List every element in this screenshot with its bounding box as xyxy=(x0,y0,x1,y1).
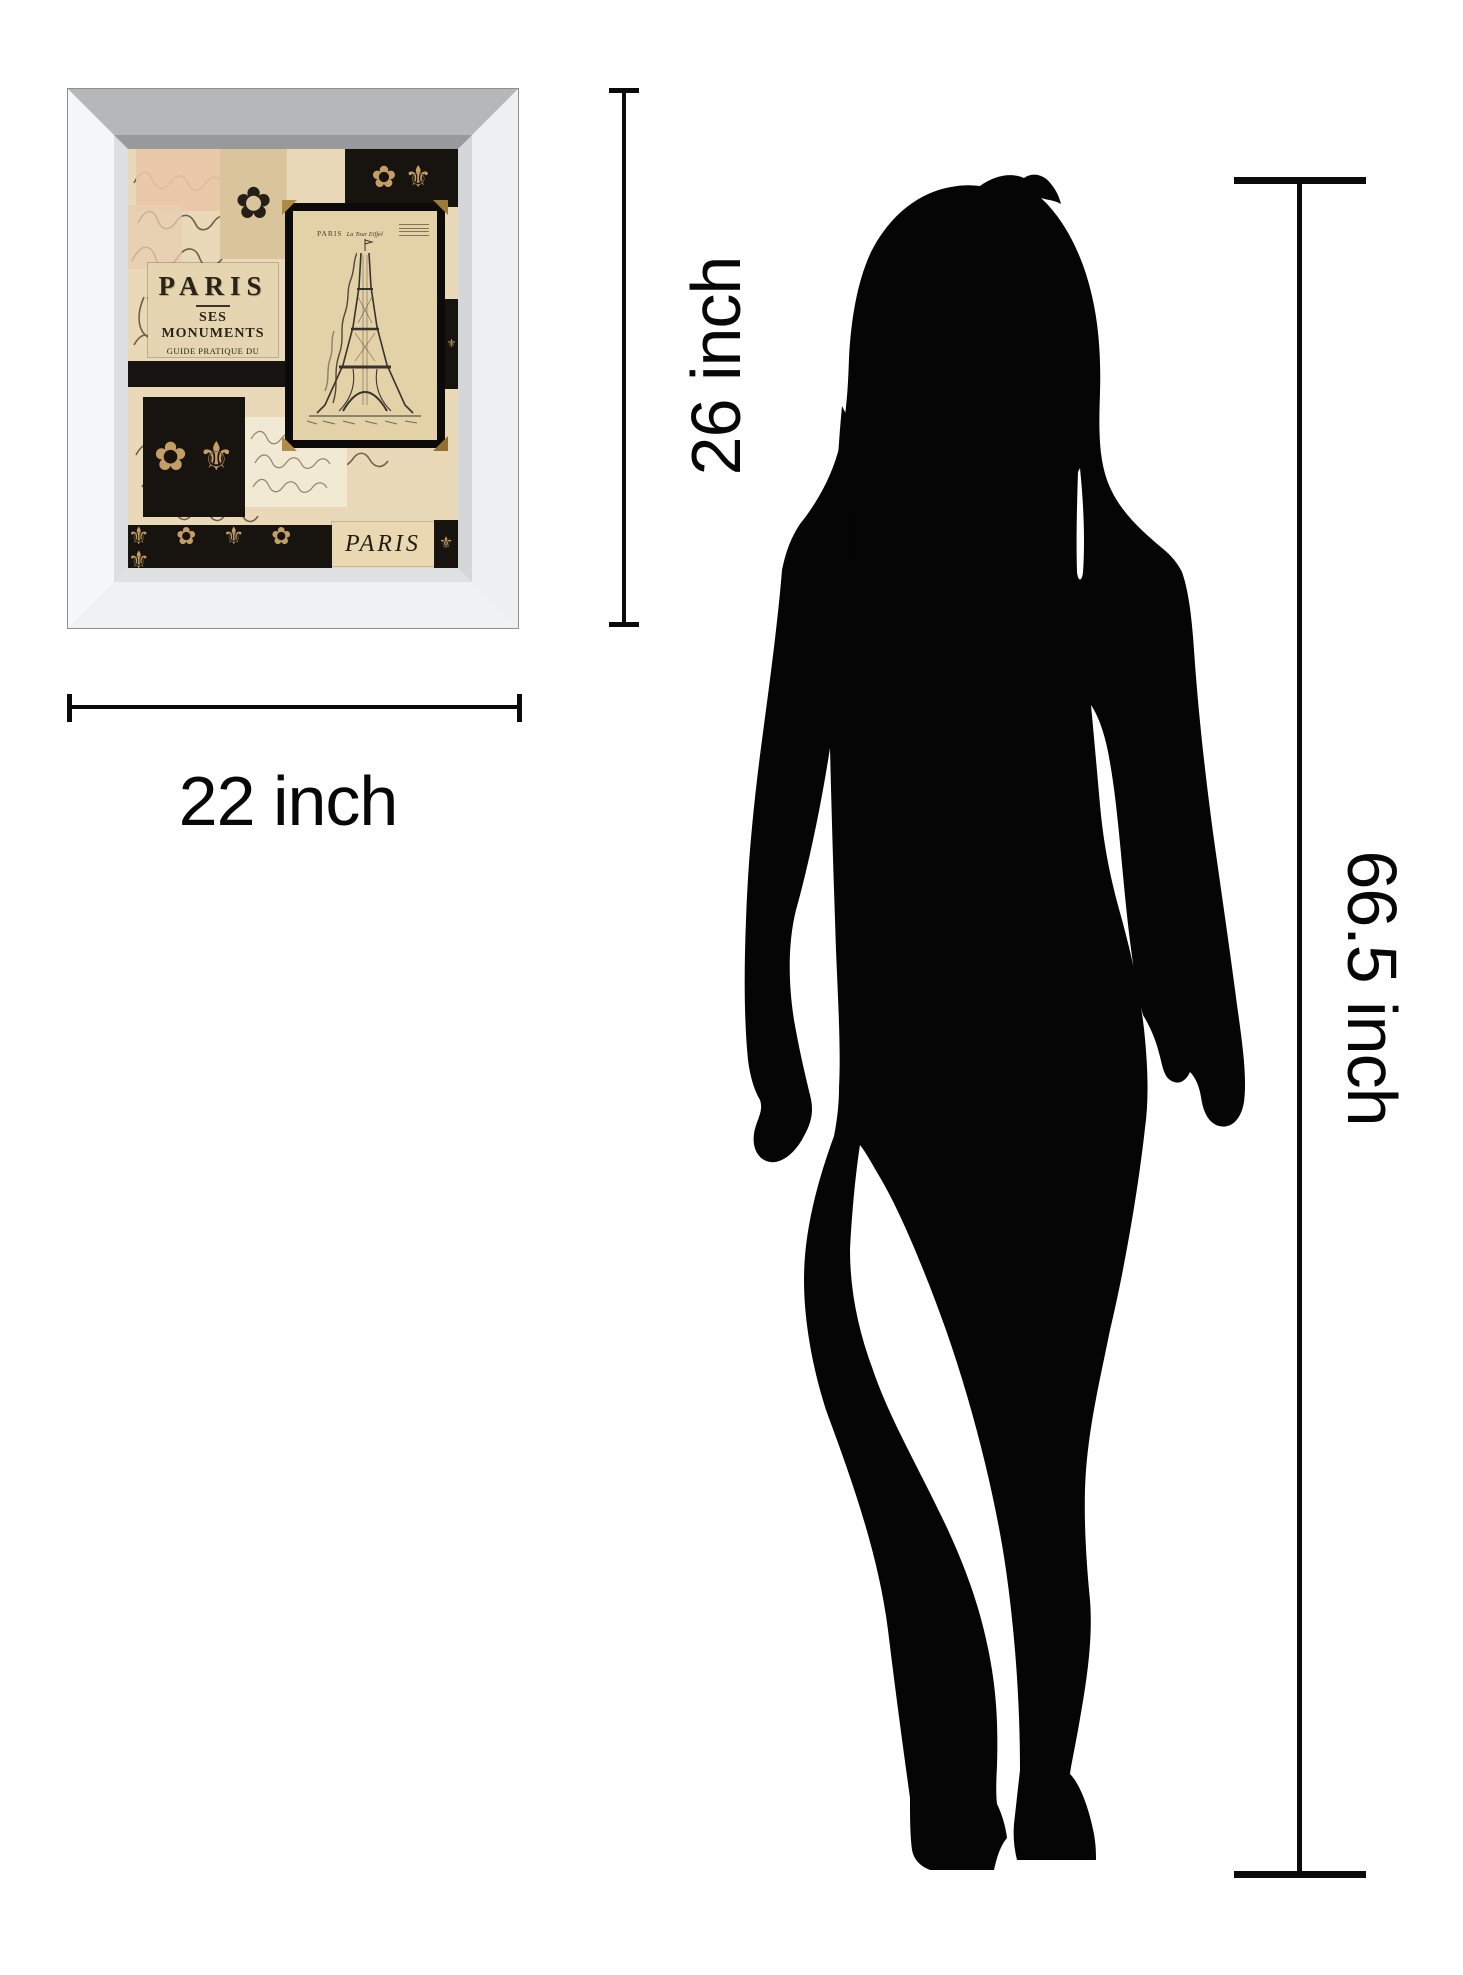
person-height-label: 66.5 inch xyxy=(1332,850,1412,1125)
mirror-frame-bevel: ✿ ✿ ⚜ ✿ ⚜ xyxy=(114,135,472,582)
damask-motif: ✿ ⚜ xyxy=(371,163,431,193)
height-dimension-cap-top xyxy=(609,88,639,93)
damask-patch-bottom: ⚜ ✿ ⚜ ✿ ⚜ xyxy=(128,525,332,568)
height-dimension-line xyxy=(622,88,626,627)
width-dimension-cap-right xyxy=(517,694,522,722)
damask-motif: ⚜ ✿ ⚜ ✿ ⚜ xyxy=(128,525,332,568)
damask-patch-left-middle: ✿ ⚜ xyxy=(143,397,245,517)
silhouette-body-path xyxy=(745,175,1245,1870)
peach-paper-patch xyxy=(128,205,182,269)
label-title: PARIS xyxy=(148,271,278,302)
width-dimension-cap-left xyxy=(67,694,72,722)
postcard-handwriting xyxy=(307,241,357,411)
damask-sliver-right: ⚜ xyxy=(445,299,458,389)
paris-guidebook-label: PARIS SES MONUMENTS GUIDE PRATIQUE DU VI… xyxy=(148,263,278,357)
mirror-frame: ✿ ✿ ⚜ ✿ ⚜ xyxy=(68,89,518,628)
label-line3: GUIDE PRATIQUE DU VISITEUR xyxy=(148,346,278,357)
frame-width-label: 22 inch xyxy=(179,761,398,841)
label-rule xyxy=(196,305,230,307)
woman-silhouette xyxy=(730,170,1260,1880)
postcard-mat: PARIS La Tour Eiffel xyxy=(285,203,445,448)
damask-motif: ✿ ⚜ xyxy=(154,437,235,477)
damask-motif: ⚜ xyxy=(447,339,457,350)
eiffel-postcard: PARIS La Tour Eiffel xyxy=(293,211,437,440)
damask-patch-top-center: ✿ xyxy=(220,149,287,259)
width-dimension-line xyxy=(67,705,522,709)
damask-motif: ⚜ xyxy=(439,536,453,552)
product-dimension-diagram: ✿ ✿ ⚜ ✿ ⚜ xyxy=(0,0,1463,1975)
paris-bottom-word: PARIS xyxy=(332,522,434,566)
label-subtitle: SES MONUMENTS xyxy=(148,310,278,342)
damask-patch-bottom-right: ⚜ xyxy=(434,520,458,568)
damask-motif: ✿ xyxy=(235,182,272,226)
paris-collage-art: ✿ ✿ ⚜ ✿ ⚜ xyxy=(128,149,458,568)
damask-patch-top-right: ✿ ⚜ xyxy=(345,149,458,207)
height-dimension-cap-bottom xyxy=(609,622,639,627)
person-height-dimension-line xyxy=(1297,177,1302,1878)
